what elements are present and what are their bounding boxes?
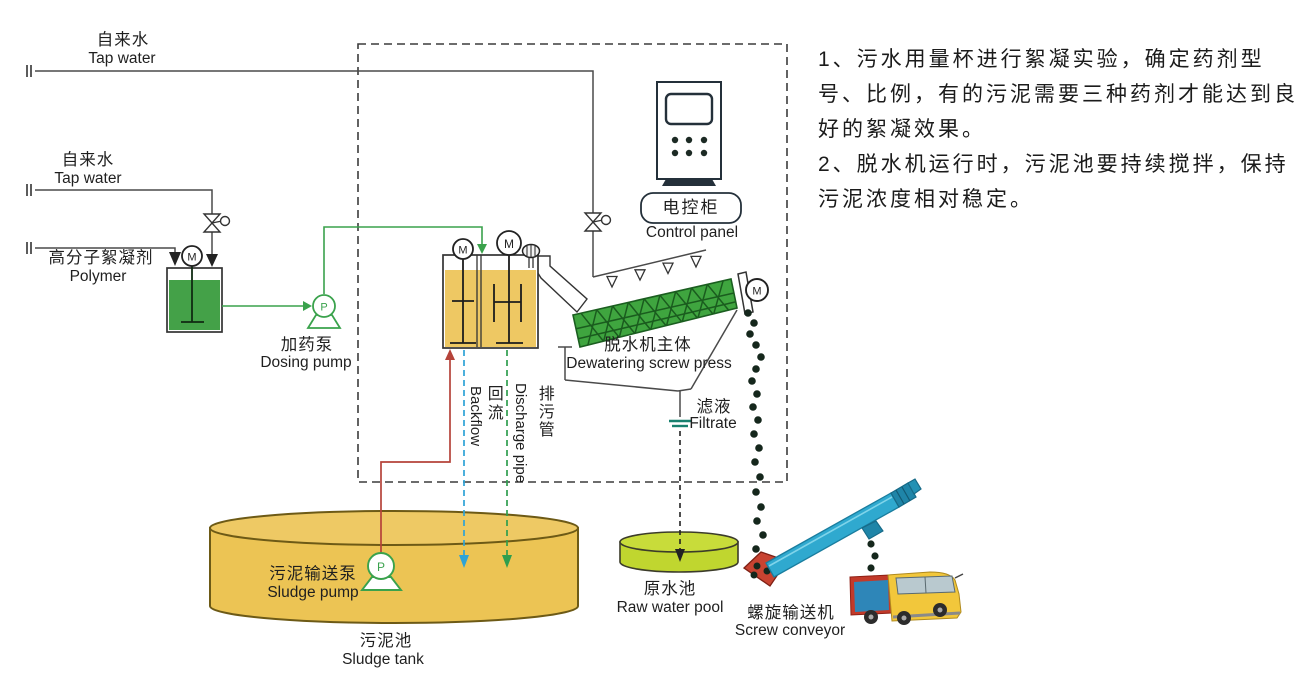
spray-nozzles — [593, 250, 706, 287]
polymer-tank-motor-icon: M — [182, 246, 202, 266]
label-press-en: Dewatering screw press — [566, 356, 731, 372]
label-dosing-pump-en: Dosing pump — [260, 355, 351, 371]
label-sludge-pump-zh: 污泥输送泵 — [269, 566, 357, 583]
label-filtrate-en: Filtrate — [689, 416, 736, 432]
note-line: 好的絮凝效果。 — [818, 112, 1298, 147]
note-line: 1、污水用量杯进行絮凝实验，确定药剂型 — [818, 42, 1298, 77]
label-polymer-zh: 高分子絮凝剂 — [49, 250, 154, 267]
truck-mirror — [955, 574, 963, 578]
label-tap-water-top-zh: 自来水 — [97, 32, 150, 49]
filtrate-symbol — [669, 421, 691, 426]
valve-icon-press-line — [585, 213, 611, 231]
label-filtrate-zh: 滤液 — [697, 399, 732, 416]
label-discharge-pipe-en: Discharge pipe — [512, 383, 528, 483]
label-tap-water-mid-en: Tap water — [54, 171, 121, 187]
label-raw-water-pool-en: Raw water pool — [617, 600, 724, 616]
label-backflow-en: Backflow — [467, 386, 483, 446]
label-backflow-zh: 回流 — [484, 385, 501, 423]
notes-panel: 1、污水用量杯进行絮凝实验，确定药剂型 号、比例，有的污泥需要三种药剂才能达到良… — [818, 42, 1298, 217]
sludge-cake-dots — [744, 309, 767, 553]
mixing-tank-motor-1-icon: M — [453, 239, 473, 259]
mixing-tank: M M — [443, 231, 540, 348]
label-sludge-tank-en: Sludge tank — [342, 652, 424, 668]
svg-text:M: M — [187, 252, 196, 264]
process-diagram-page: M P M — [0, 0, 1301, 680]
svg-text:P: P — [377, 560, 385, 574]
label-control-panel-zh: 电控柜 — [663, 199, 720, 217]
label-polymer-en: Polymer — [70, 269, 127, 285]
label-dosing-pump-zh: 加药泵 — [281, 337, 334, 354]
feed-chute — [536, 256, 587, 312]
svg-text:M: M — [458, 245, 467, 257]
svg-text:M: M — [504, 237, 514, 251]
label-screw-conveyor-zh: 螺旋输送机 — [747, 605, 835, 622]
mixing-tank-motor-2-icon: M — [497, 231, 521, 255]
note-line: 2、脱水机运行时，污泥池要持续搅拌，保持 — [818, 147, 1298, 182]
svg-text:M: M — [752, 286, 761, 298]
label-discharge-pipe-zh: 排污管 — [535, 385, 552, 439]
label-tap-water-mid-zh: 自来水 — [62, 152, 115, 169]
label-tap-water-top-en: Tap water — [88, 51, 155, 67]
press-motor-icon: M — [746, 279, 768, 301]
label-raw-water-pool-zh: 原水池 — [644, 581, 697, 598]
control-panel-screen — [666, 94, 712, 124]
svg-text:P: P — [320, 302, 327, 314]
label-sludge-tank-zh: 污泥池 — [360, 633, 413, 650]
note-line: 污泥浓度相对稳定。 — [818, 182, 1298, 217]
dosing-pump-icon: P — [308, 295, 340, 328]
label-sludge-pump-en: Sludge pump — [267, 585, 358, 601]
truck — [850, 572, 963, 625]
note-line: 号、比例，有的污泥需要三种药剂才能达到良 — [818, 77, 1298, 112]
screw-conveyor-shape — [744, 479, 921, 586]
label-press-zh: 脱水机主体 — [604, 337, 692, 354]
truck-cargo-box — [854, 580, 889, 612]
label-control-panel-en: Control panel — [646, 225, 738, 241]
valve-icon-tank-line — [204, 214, 230, 232]
label-screw-conveyor-en: Screw conveyor — [735, 623, 845, 639]
